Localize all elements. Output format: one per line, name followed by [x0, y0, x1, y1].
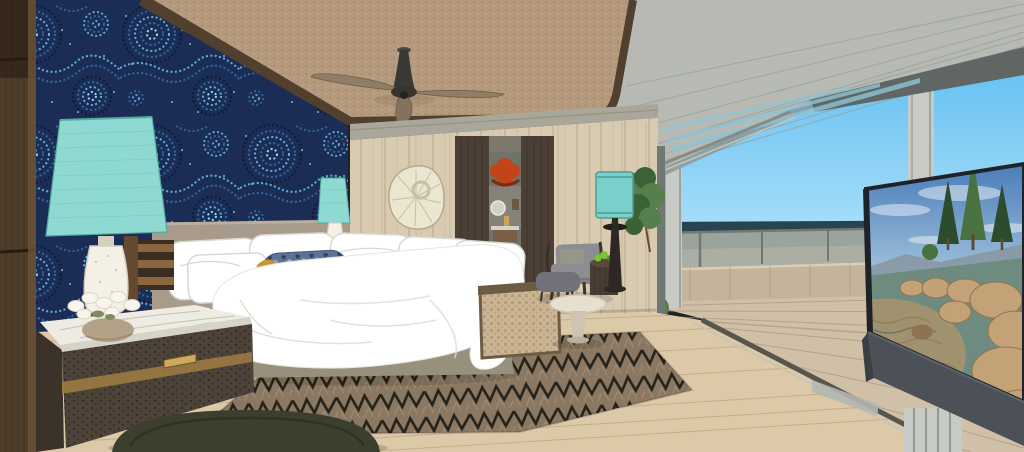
render-canvas: [0, 0, 1024, 452]
left-wood-column: [0, 0, 36, 452]
shell-wall-art: [389, 166, 444, 229]
vanity: [493, 230, 517, 242]
round-mirror: [491, 201, 505, 215]
glass-door-mullion: [657, 146, 665, 316]
decorative-stone: [82, 318, 134, 342]
gold-sculpture: [504, 216, 509, 226]
deck-post: [664, 168, 682, 308]
small-art: [512, 199, 519, 210]
bedroom-rendering: [0, 0, 1024, 452]
chair-pillow: [560, 249, 584, 264]
